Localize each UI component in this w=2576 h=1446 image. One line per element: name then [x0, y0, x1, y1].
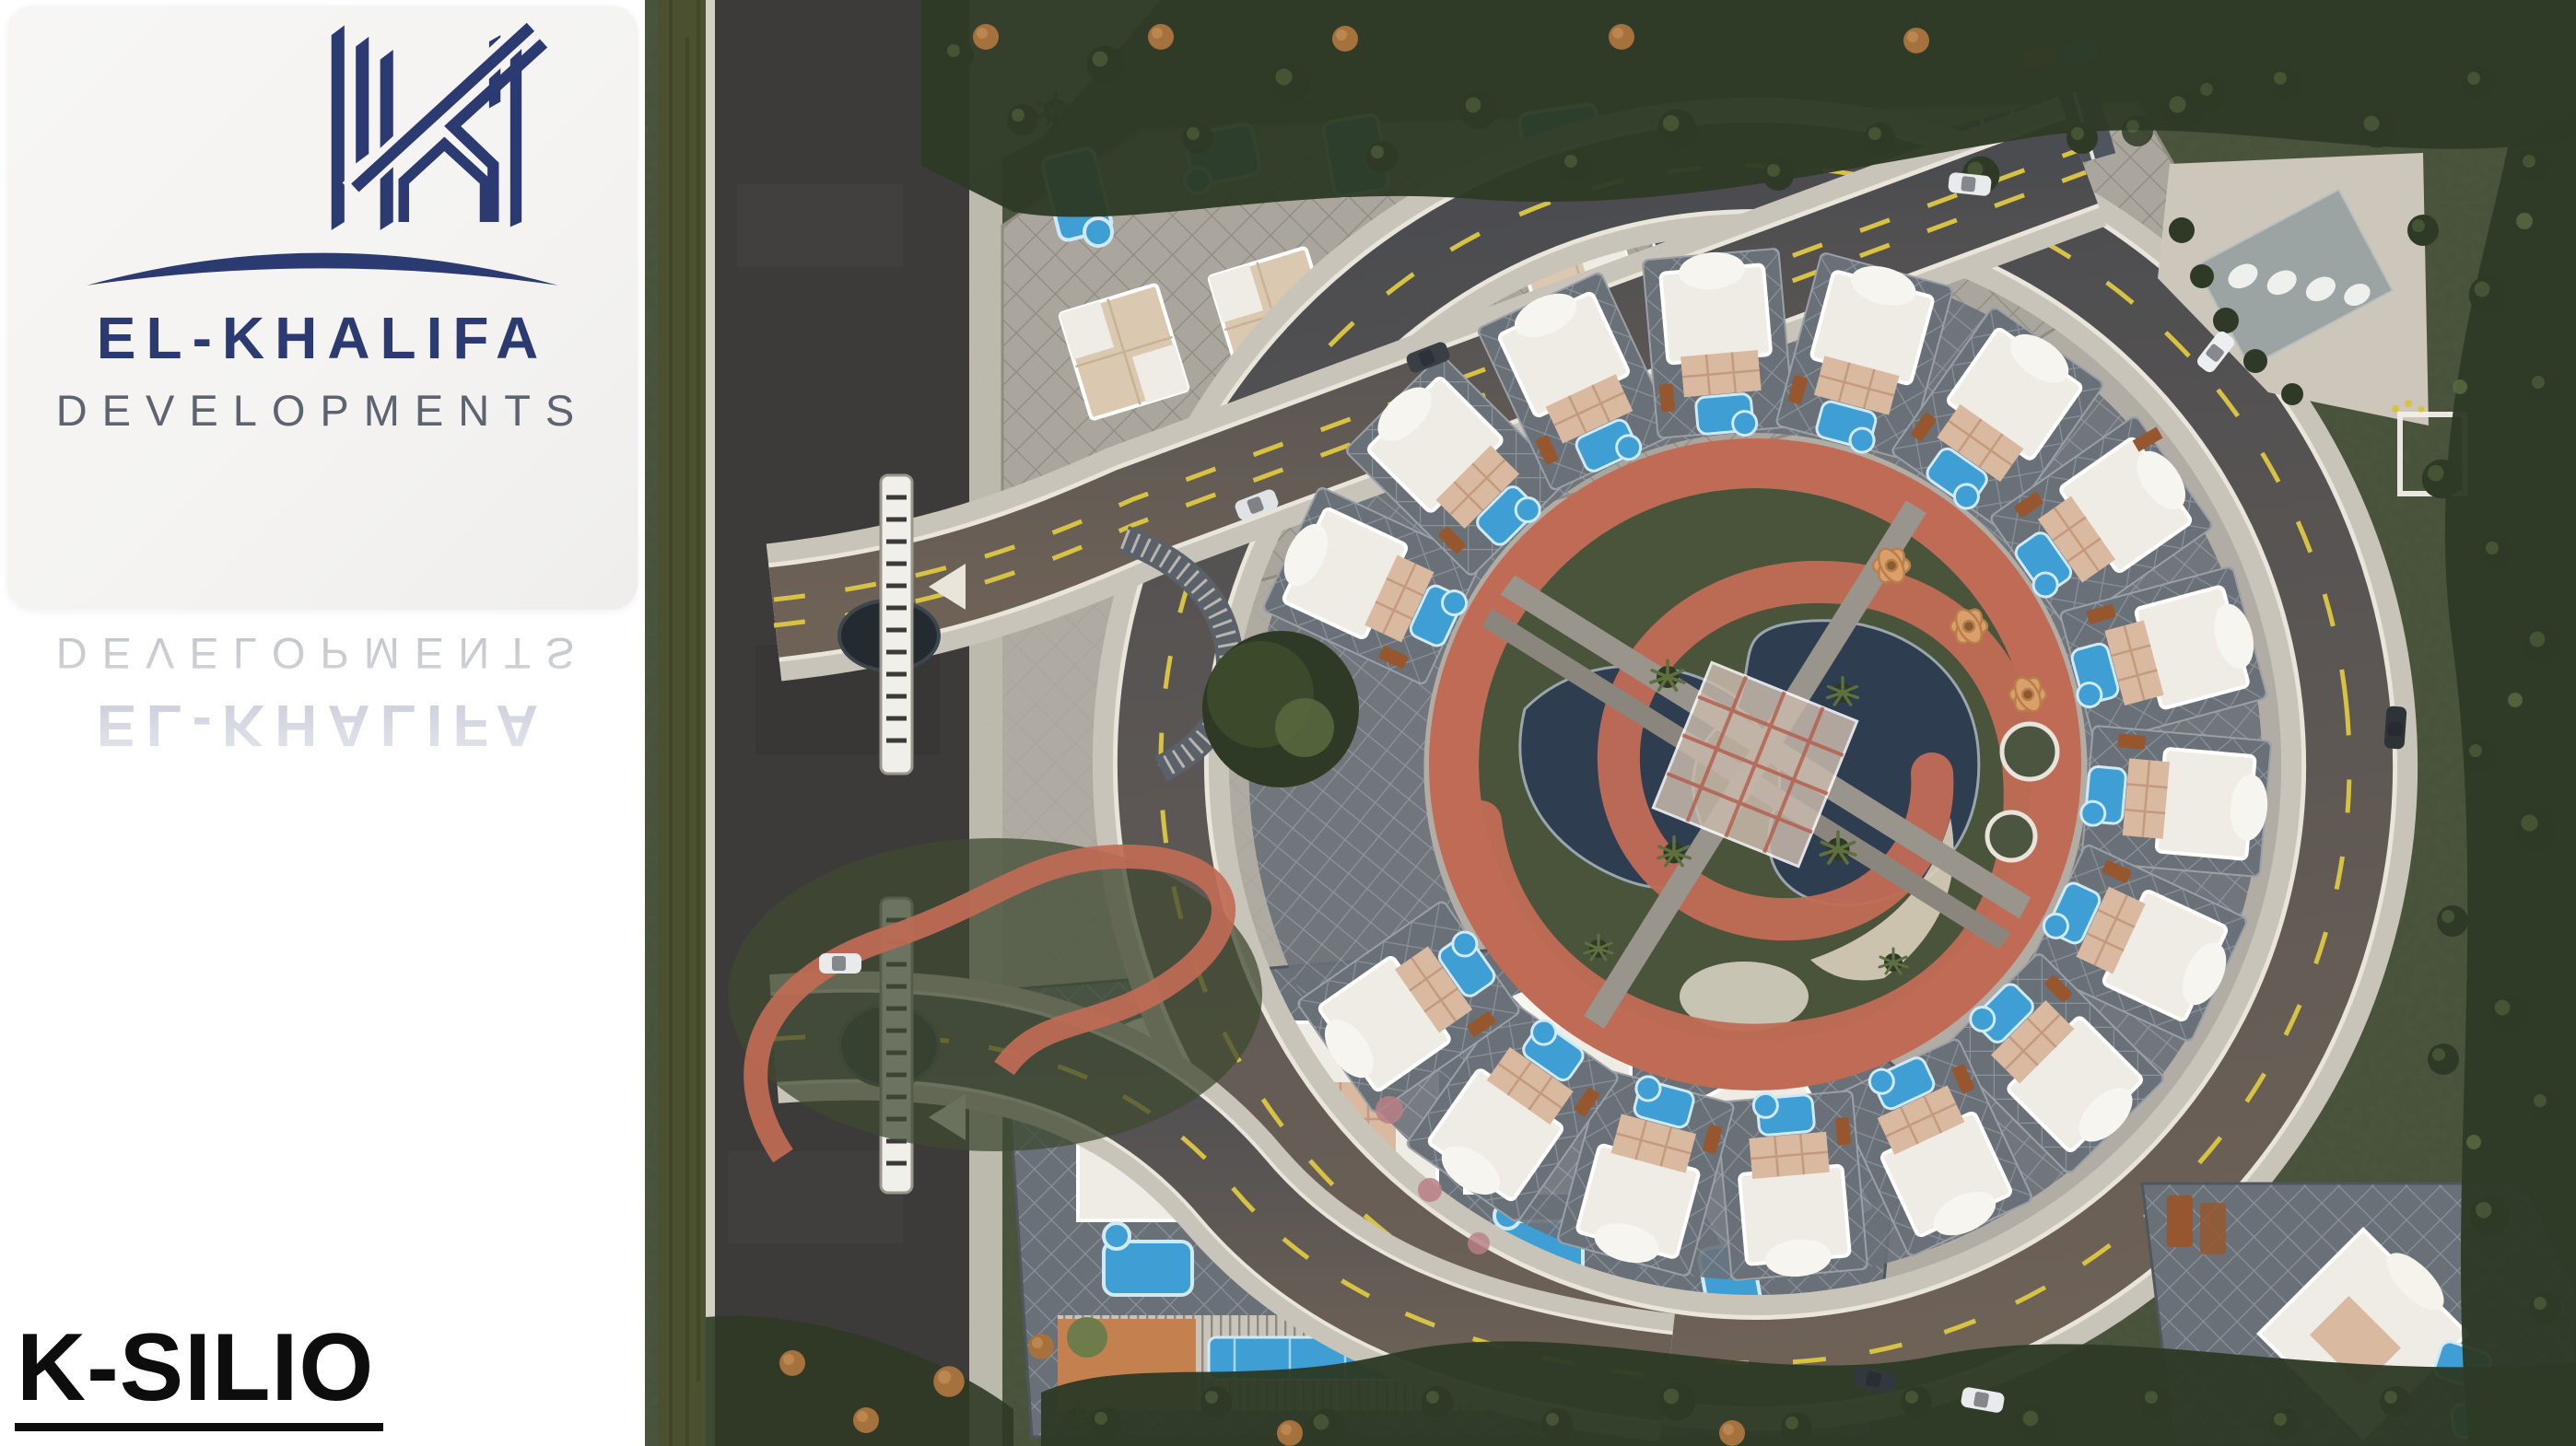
project-name: K-SILIO	[15, 1318, 383, 1431]
central-park	[1412, 463, 2101, 1066]
brand-reflection: EL-KHALIFA DEVELOPMENTS	[7, 619, 638, 895]
brand-division-reflected: DEVELOPMENTS	[7, 628, 638, 679]
brand-division: DEVELOPMENTS	[7, 385, 638, 436]
brand-name-reflected: EL-KHALIFA	[7, 692, 638, 760]
brand-panel: EL-KHALIFA DEVELOPMENTS EL-KHALIFA DEVEL…	[0, 0, 645, 1446]
el-khalifa-logo-icon	[78, 22, 567, 298]
brand-card: EL-KHALIFA DEVELOPMENTS	[7, 6, 638, 610]
masterplan-render	[645, 0, 2576, 1446]
brand-name: EL-KHALIFA	[7, 304, 638, 372]
page: EL-KHALIFA DEVELOPMENTS EL-KHALIFA DEVEL…	[0, 0, 2576, 1446]
